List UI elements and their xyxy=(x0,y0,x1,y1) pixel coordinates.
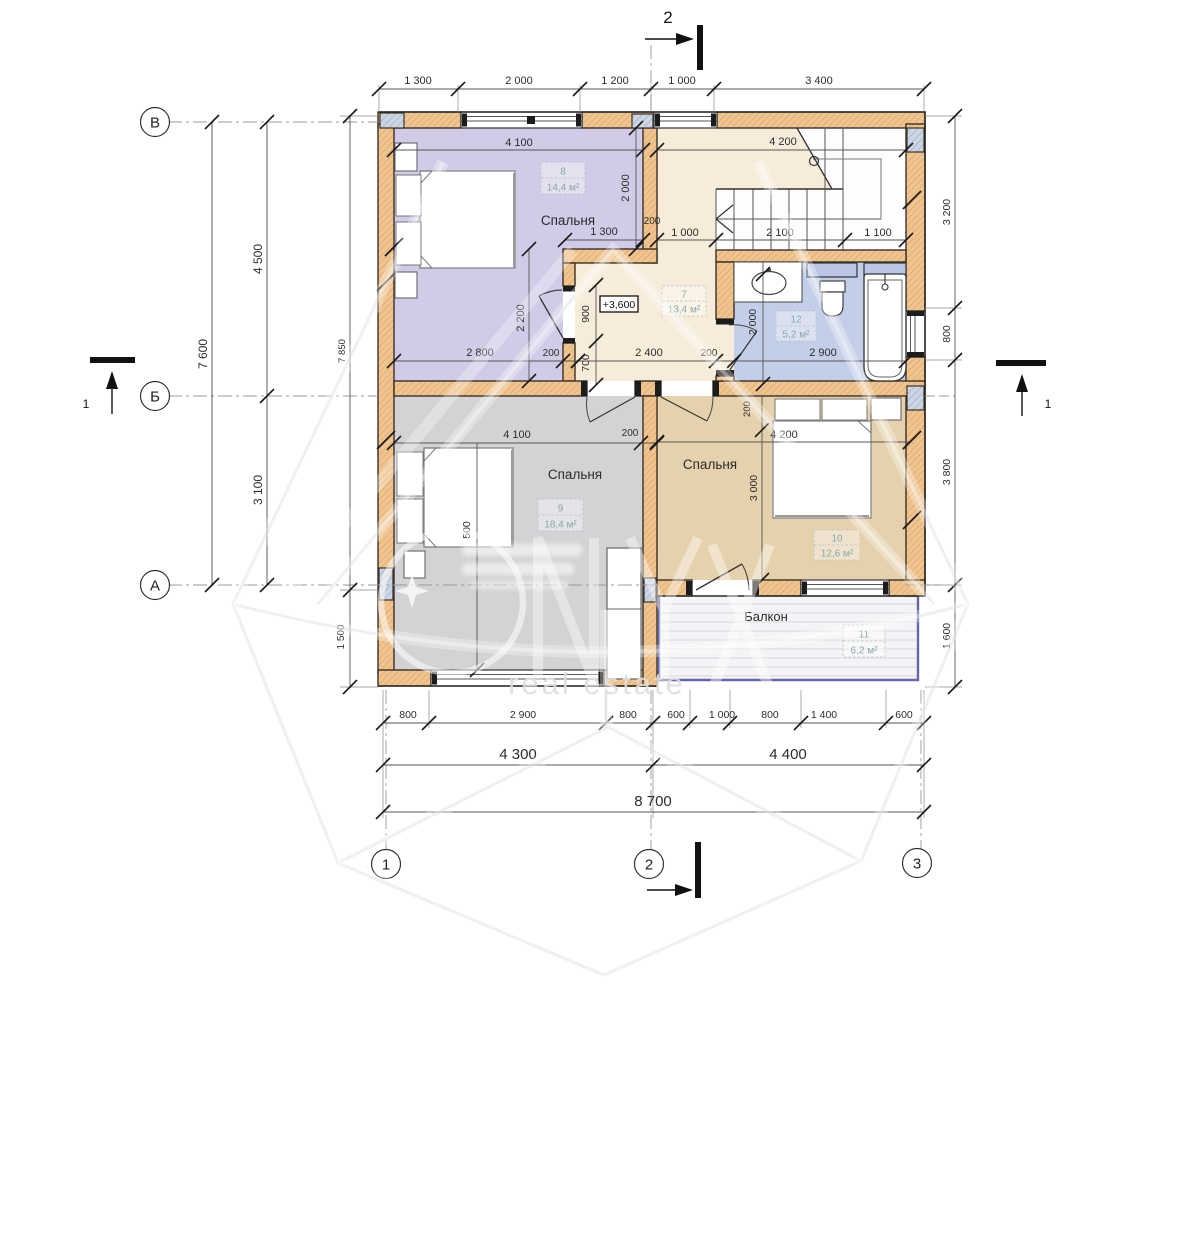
svg-text:Б: Б xyxy=(150,389,160,406)
svg-text:2 900: 2 900 xyxy=(510,709,536,721)
svg-text:2 000: 2 000 xyxy=(505,75,533,87)
svg-text:1 400: 1 400 xyxy=(811,709,837,721)
svg-text:12,6 м²: 12,6 м² xyxy=(821,549,854,560)
svg-text:1 200: 1 200 xyxy=(601,75,629,87)
svg-text:2: 2 xyxy=(663,8,672,27)
svg-text:10: 10 xyxy=(831,534,843,545)
svg-text:800: 800 xyxy=(941,325,953,343)
svg-text:В: В xyxy=(150,115,160,132)
svg-text:3 800: 3 800 xyxy=(941,459,953,485)
svg-text:7 600: 7 600 xyxy=(196,339,210,369)
svg-text:200: 200 xyxy=(543,348,560,359)
svg-text:3 200: 3 200 xyxy=(941,199,953,225)
svg-text:12: 12 xyxy=(790,315,802,326)
svg-text:600: 600 xyxy=(895,709,913,721)
svg-text:1: 1 xyxy=(83,397,90,411)
svg-text:1 000: 1 000 xyxy=(668,75,696,87)
svg-text:А: А xyxy=(150,578,160,595)
svg-text:1 300: 1 300 xyxy=(404,75,432,87)
svg-text:2: 2 xyxy=(645,857,653,874)
svg-text:7: 7 xyxy=(681,290,687,301)
svg-text:6,2 м²: 6,2 м² xyxy=(851,646,879,657)
svg-text:3 100: 3 100 xyxy=(251,475,265,505)
svg-text:1 000: 1 000 xyxy=(671,227,699,239)
svg-text:3 400: 3 400 xyxy=(805,75,833,87)
svg-text:1 100: 1 100 xyxy=(864,227,892,239)
svg-text:900: 900 xyxy=(580,305,592,323)
svg-text:3: 3 xyxy=(913,856,921,873)
svg-text:4 500: 4 500 xyxy=(251,244,265,274)
svg-text:8 700: 8 700 xyxy=(634,793,672,810)
svg-text:8: 8 xyxy=(560,167,566,178)
svg-text:800: 800 xyxy=(399,709,417,721)
svg-text:4 200: 4 200 xyxy=(769,136,797,148)
svg-text:800: 800 xyxy=(761,709,779,721)
svg-text:5,2 м²: 5,2 м² xyxy=(783,330,811,341)
svg-text:4 100: 4 100 xyxy=(505,137,533,149)
svg-text:Спальня: Спальня xyxy=(548,467,602,482)
svg-text:2 000: 2 000 xyxy=(620,174,632,202)
svg-text:1 000: 1 000 xyxy=(709,709,735,721)
svg-text:4 400: 4 400 xyxy=(769,746,807,763)
svg-text:4 100: 4 100 xyxy=(503,429,531,441)
svg-text:1: 1 xyxy=(382,857,390,874)
svg-text:3 000: 3 000 xyxy=(748,475,760,501)
svg-text:2 400: 2 400 xyxy=(635,347,663,359)
svg-text:200: 200 xyxy=(622,428,639,439)
svg-text:Спальня: Спальня xyxy=(541,213,595,228)
svg-text:1: 1 xyxy=(1045,397,1052,411)
svg-text:18,4 м²: 18,4 м² xyxy=(544,520,577,531)
svg-text:14,4 м²: 14,4 м² xyxy=(547,183,580,194)
svg-text:real estate: real estate xyxy=(508,666,686,701)
svg-text:Спальня: Спальня xyxy=(683,457,737,472)
svg-text:Балкон: Балкон xyxy=(744,609,788,624)
svg-text:600: 600 xyxy=(667,709,685,721)
svg-text:2 900: 2 900 xyxy=(809,347,837,359)
svg-text:2 000: 2 000 xyxy=(747,309,759,335)
svg-text:800: 800 xyxy=(619,709,637,721)
svg-text:200: 200 xyxy=(644,216,661,227)
svg-text:+3,600: +3,600 xyxy=(603,299,636,311)
svg-text:9: 9 xyxy=(558,504,564,515)
